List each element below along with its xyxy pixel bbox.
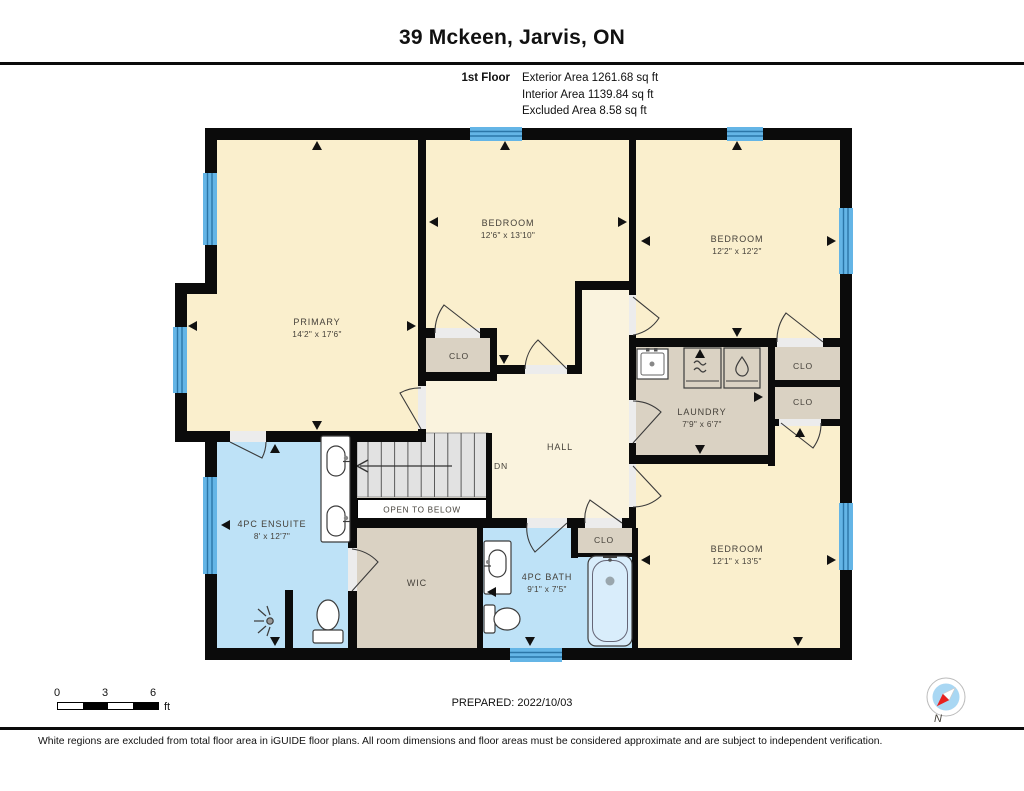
bathtub-icon bbox=[588, 556, 632, 646]
bedroom-mid-label: BEDROOM bbox=[482, 218, 535, 228]
closet1-label: CLO bbox=[793, 361, 813, 371]
closet2-label: CLO bbox=[793, 397, 813, 407]
window bbox=[510, 648, 562, 662]
bedroom-mid-dims: 12'6" x 13'10" bbox=[481, 230, 535, 240]
open-to-below-label: OPEN TO BELOW bbox=[383, 506, 461, 515]
bath-vanity bbox=[484, 541, 511, 594]
stairs-box bbox=[357, 433, 488, 497]
bedroom-bottom-dims: 12'1" x 13'5" bbox=[712, 556, 761, 566]
compass-north-label: N bbox=[934, 713, 942, 725]
wic-area bbox=[354, 523, 480, 653]
bedroom-right-label: BEDROOM bbox=[711, 234, 764, 244]
primary-dims: 14'2" x 17'6" bbox=[292, 329, 341, 339]
disclaimer-text: White regions are excluded from total fl… bbox=[38, 736, 998, 747]
bath-label: 4PC BATH bbox=[522, 572, 573, 582]
compass: N bbox=[917, 670, 977, 730]
prepared-date: PREPARED: 2022/10/03 bbox=[0, 697, 1024, 709]
closet-mid-label: CLO bbox=[449, 351, 469, 361]
primary-area bbox=[211, 134, 423, 436]
bedroom-right-dims: 12'2" x 12'2" bbox=[712, 246, 761, 256]
ensuite-label: 4PC ENSUITE bbox=[238, 519, 307, 529]
stairs-dn-label: DN bbox=[494, 461, 508, 471]
window bbox=[839, 208, 853, 274]
window bbox=[203, 173, 217, 245]
wic-label: WIC bbox=[407, 578, 427, 588]
bedroom-bottom-label: BEDROOM bbox=[711, 544, 764, 554]
hall-label: HALL bbox=[547, 442, 573, 452]
laundry-label: LAUNDRY bbox=[677, 407, 726, 417]
laundry-dims: 7'9" x 6'7" bbox=[682, 419, 722, 429]
window bbox=[470, 127, 522, 141]
primary-label: PRIMARY bbox=[293, 317, 340, 327]
window bbox=[839, 503, 853, 570]
bedroom-mid-area bbox=[423, 134, 634, 286]
window bbox=[727, 127, 763, 141]
floor-plan-page: 39 Mckeen, Jarvis, ON 1st Floor Exterior… bbox=[0, 0, 1024, 791]
window bbox=[173, 327, 187, 393]
closet-bath-label: CLO bbox=[594, 535, 614, 545]
footer-divider bbox=[0, 727, 1024, 730]
bath-dims: 9'1" x 7'5" bbox=[527, 584, 567, 594]
window bbox=[203, 477, 217, 574]
ensuite-dims: 8' x 12'7" bbox=[254, 531, 290, 541]
room-areas bbox=[181, 134, 846, 654]
ensuite-vanity bbox=[321, 436, 350, 542]
laundry-sink bbox=[637, 348, 668, 379]
floor-plan-drawing: PRIMARY 14'2" x 17'6" BEDROOM 12'6" x 13… bbox=[0, 0, 1024, 791]
